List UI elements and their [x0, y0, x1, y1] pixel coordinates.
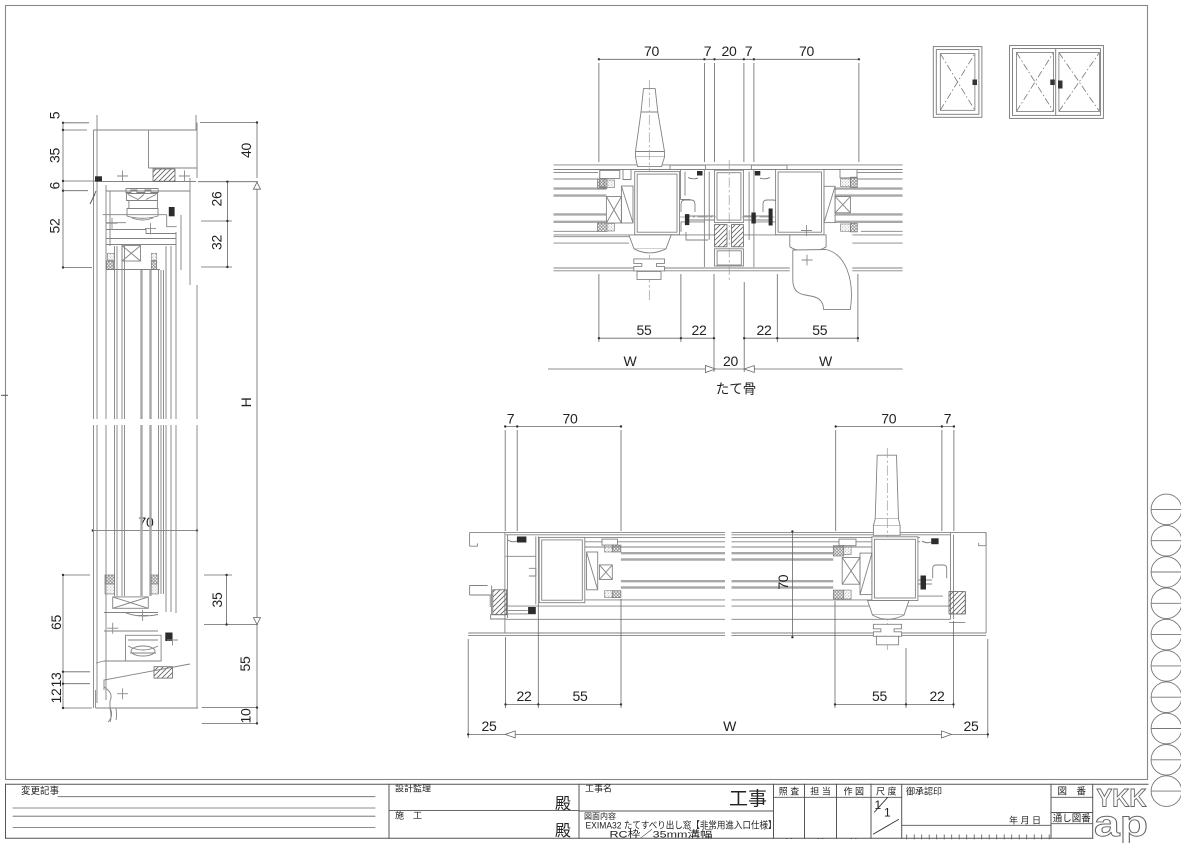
svg-text:55: 55	[573, 688, 588, 704]
svg-text:工事名: 工事名	[585, 783, 612, 794]
svg-text:32: 32	[209, 235, 225, 250]
svg-text:7: 7	[704, 43, 712, 59]
svg-text:55: 55	[637, 322, 652, 338]
svg-text:作 図: 作 図	[843, 786, 864, 797]
svg-text:70: 70	[799, 43, 814, 59]
svg-text:25: 25	[482, 718, 497, 734]
svg-text:. .: . .	[817, 832, 824, 841]
svg-text:御承認印: 御承認印	[906, 786, 942, 797]
svg-text:10: 10	[238, 708, 254, 723]
svg-text:25: 25	[964, 718, 979, 734]
svg-text:担 当: 担 当	[810, 786, 831, 797]
svg-text:W: W	[819, 353, 833, 369]
svg-text:65: 65	[48, 615, 64, 630]
svg-text:7: 7	[944, 411, 952, 427]
svg-text:7: 7	[745, 43, 753, 59]
svg-text:20: 20	[723, 353, 738, 369]
svg-text:13: 13	[48, 672, 64, 687]
svg-text:20: 20	[722, 43, 737, 59]
svg-text:26: 26	[209, 191, 225, 206]
svg-text:55: 55	[872, 688, 887, 704]
svg-text:70: 70	[881, 411, 896, 427]
svg-text:図 番: 図 番	[1058, 786, 1087, 798]
svg-text:たて骨: たて骨	[716, 382, 757, 397]
svg-text:ap: ap	[1094, 803, 1148, 843]
svg-text:22: 22	[517, 688, 532, 704]
svg-text:工事: 工事	[729, 788, 767, 810]
svg-text:70: 70	[563, 411, 578, 427]
svg-text:55: 55	[237, 656, 253, 671]
svg-text:12: 12	[48, 688, 64, 703]
svg-text:70: 70	[644, 43, 659, 59]
svg-text:5: 5	[47, 111, 63, 119]
svg-text:RC枠／35mm溝幅: RC枠／35mm溝幅	[610, 829, 714, 841]
svg-text:. .: . .	[850, 832, 857, 841]
svg-text:図面内容: 図面内容	[584, 811, 616, 821]
svg-text:照 査: 照 査	[779, 786, 800, 797]
svg-text:尺 度: 尺 度	[876, 786, 897, 797]
svg-text:設計監理: 設計監理	[395, 783, 431, 794]
svg-text:35: 35	[47, 148, 63, 163]
svg-text:殿: 殿	[555, 822, 571, 840]
svg-text:7: 7	[507, 411, 515, 427]
svg-text:6: 6	[47, 182, 63, 190]
svg-text:52: 52	[47, 218, 63, 233]
svg-text:1: 1	[884, 806, 891, 820]
svg-text:22: 22	[692, 322, 707, 338]
svg-text:22: 22	[930, 688, 945, 704]
svg-text:35: 35	[209, 592, 225, 607]
svg-text:40: 40	[238, 143, 254, 158]
svg-text:70: 70	[775, 574, 791, 589]
svg-text:22: 22	[757, 322, 772, 338]
svg-text:変更記事: 変更記事	[21, 785, 60, 797]
svg-text:. .: . .	[786, 832, 793, 841]
svg-text:年 月 日: 年 月 日	[1009, 815, 1041, 826]
svg-text:55: 55	[812, 322, 827, 338]
svg-text:施 工: 施 工	[395, 810, 422, 821]
svg-text:W: W	[723, 718, 737, 734]
svg-text:W: W	[624, 353, 638, 369]
svg-text:H: H	[238, 398, 254, 408]
svg-text:通し図番: 通し図番	[1053, 813, 1092, 825]
